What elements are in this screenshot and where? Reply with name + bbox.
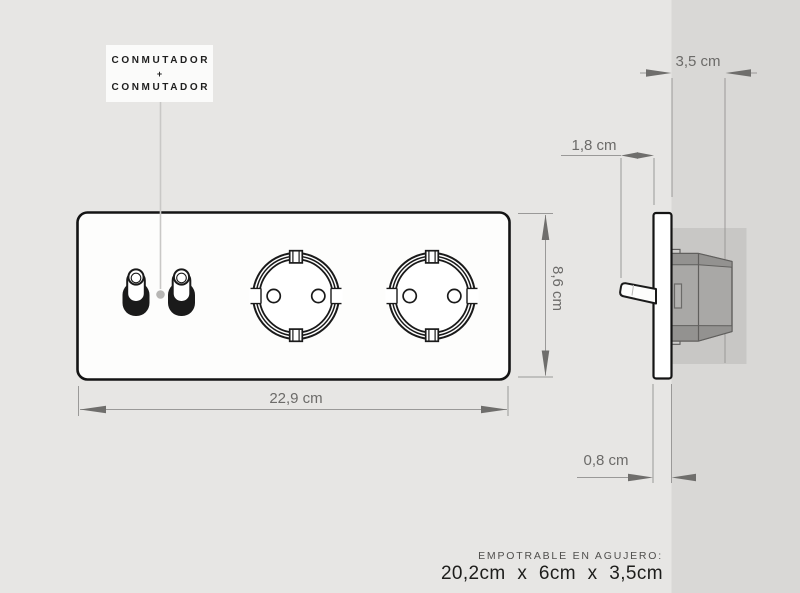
side-view-mechanism: [671, 249, 733, 344]
lever-protrusion-label: 1,8 cm: [554, 137, 634, 154]
callout-box: CONMUTADOR + CONMUTADOR: [106, 45, 213, 102]
plate-thickness-label: 0,8 cm: [566, 452, 646, 469]
leader-dot: [156, 290, 165, 299]
diagram-canvas: CONMUTADOR + CONMUTADOR 22,9 cm 8,6 cm 3…: [0, 0, 800, 593]
dimension-panel-height: [518, 214, 553, 378]
hole-note-label: EMPOTRABLE EN AGUJERO:: [478, 550, 663, 562]
callout-line1: CONMUTADOR: [109, 55, 210, 66]
callout-separator: +: [157, 69, 162, 79]
panel-width-label: 22,9 cm: [236, 390, 356, 407]
dimension-lever-protrusion: [561, 152, 654, 278]
toggle-lever-side: [620, 283, 656, 303]
callout-line2: CONMUTADOR: [109, 82, 210, 93]
hole-size-label: 20,2cm x 6cm x 3,5cm: [441, 563, 663, 585]
recess-depth-label: 3,5 cm: [658, 53, 738, 70]
panel-height-label: 8,6 cm: [549, 266, 566, 326]
